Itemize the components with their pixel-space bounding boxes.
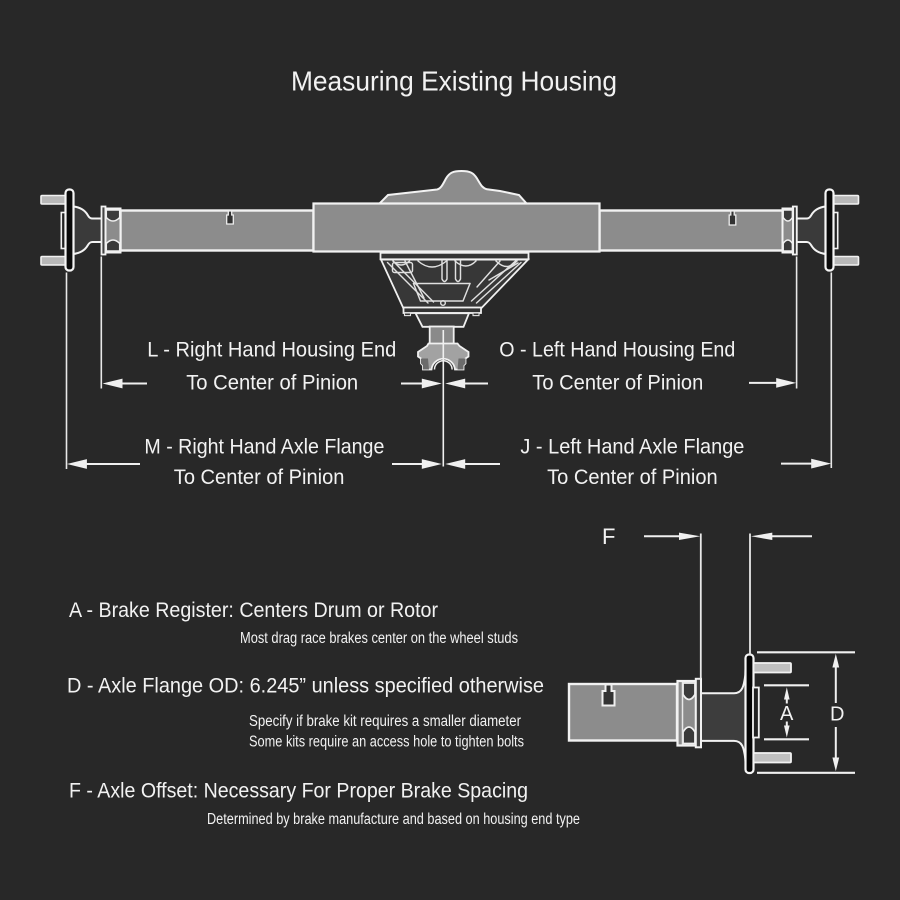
- svg-text:A: A: [780, 703, 794, 725]
- svg-text:To Center of Pinion: To Center of Pinion: [547, 465, 718, 489]
- svg-text:F: F: [602, 524, 615, 549]
- svg-text:A - Brake Register: Centers Dr: A - Brake Register: Centers Drum or Roto…: [69, 599, 438, 622]
- svg-text:To Center of Pinion: To Center of Pinion: [174, 465, 345, 489]
- svg-text:To Center of Pinion: To Center of Pinion: [186, 371, 358, 395]
- svg-text:L - Right Hand Housing End: L - Right Hand Housing End: [147, 338, 396, 362]
- svg-text:F - Axle Offset: Necessary For: F - Axle Offset: Necessary For Proper Br…: [69, 780, 528, 803]
- svg-text:Most drag race brakes center o: Most drag race brakes center on the whee…: [240, 630, 518, 647]
- svg-text:O - Left Hand Housing End: O - Left Hand Housing End: [499, 338, 735, 362]
- svg-text:D: D: [830, 704, 844, 726]
- svg-text:Measuring Existing Housing: Measuring Existing Housing: [291, 66, 617, 97]
- svg-text:Determined by brake manufactur: Determined by brake manufacture and base…: [207, 811, 580, 828]
- svg-text:Specify if brake kit requires: Specify if brake kit requires a smaller …: [249, 713, 521, 730]
- svg-text:M - Right Hand Axle Flange: M - Right Hand Axle Flange: [144, 435, 384, 459]
- svg-text:J - Left Hand Axle Flange: J - Left Hand Axle Flange: [520, 435, 744, 459]
- svg-text:To Center of Pinion: To Center of Pinion: [532, 371, 703, 395]
- svg-text:Some kits require an access ho: Some kits require an access hole to tigh…: [249, 734, 524, 751]
- svg-text:D - Axle Flange OD: 6.245” unl: D - Axle Flange OD: 6.245” unless specif…: [67, 675, 544, 698]
